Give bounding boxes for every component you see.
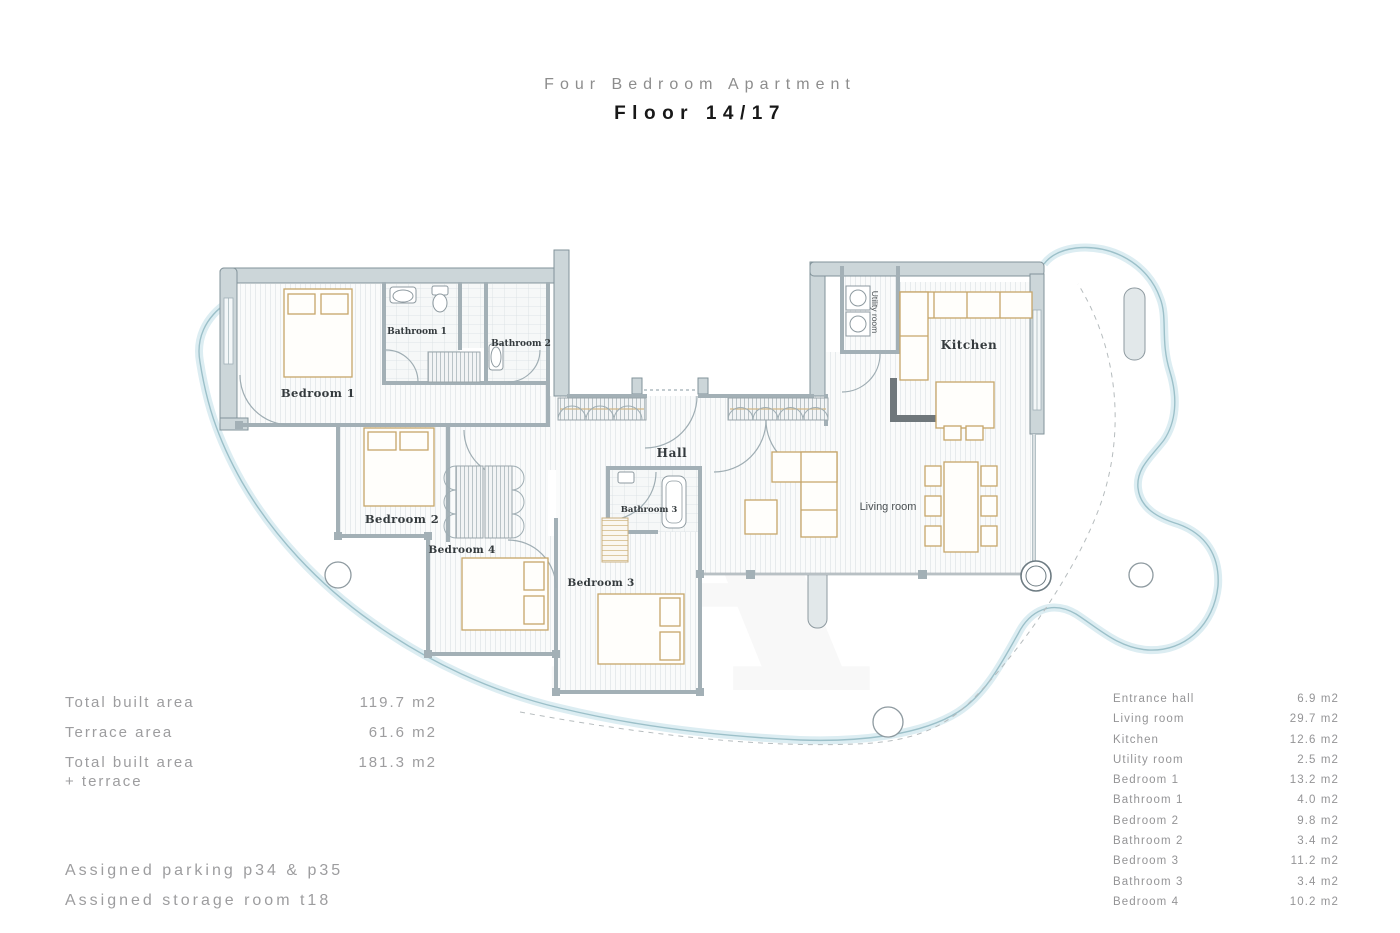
area-row-value: 13.2 m2 — [1290, 770, 1339, 790]
floor-number-title: Floor 14/17 — [0, 103, 1400, 125]
summary-label-line1: Total built area — [65, 754, 195, 771]
area-row-label: Bedroom 4 — [1113, 892, 1179, 912]
area-row-value: 4.0 m2 — [1297, 790, 1339, 810]
area-row-value: 3.4 m2 — [1297, 831, 1339, 851]
terrace-column — [1129, 563, 1153, 587]
area-row-value: 2.5 m2 — [1297, 750, 1339, 770]
summary-label: Terrace area — [65, 724, 173, 741]
area-row-label: Bathroom 1 — [1113, 790, 1183, 810]
assigned-storage-line: Assigned storage room t18 — [65, 886, 343, 916]
summary-row-total-plus-terrace: Total built area + terrace 181.3 m2 — [65, 754, 437, 790]
apartment-type-title: Four Bedroom Apartment — [0, 76, 1400, 94]
terrace-column — [325, 562, 351, 588]
summary-value: 119.7 m2 — [360, 694, 437, 711]
area-row: Bathroom 3 3.4 m2 — [1113, 872, 1339, 892]
summary-value: 181.3 m2 — [358, 754, 437, 790]
area-row-label: Utility room — [1113, 750, 1184, 770]
area-row-label: Bedroom 1 — [1113, 770, 1179, 790]
label-bedroom-1: Bedroom 1 — [281, 386, 355, 400]
summary-label: Total built area — [65, 694, 195, 711]
area-row-value: 10.2 m2 — [1290, 892, 1339, 912]
area-row: Utility room 2.5 m2 — [1113, 750, 1339, 770]
label-bathroom-1: Bathroom 1 — [387, 327, 447, 337]
room-areas-list: Entrance hall 6.9 m2 Living room 29.7 m2… — [1113, 689, 1339, 912]
area-row: Entrance hall 6.9 m2 — [1113, 689, 1339, 709]
area-row-value: 29.7 m2 — [1290, 709, 1339, 729]
area-summary: Total built area 119.7 m2 Terrace area 6… — [65, 694, 437, 803]
assigned-parking-line: Assigned parking p34 & p35 — [65, 856, 343, 886]
label-utility-room: Utility room — [870, 291, 880, 334]
label-kitchen: Kitchen — [941, 338, 997, 352]
area-row-value: 9.8 m2 — [1297, 811, 1339, 831]
title-block: Four Bedroom Apartment Floor 14/17 — [0, 76, 1400, 125]
assignments-block: Assigned parking p34 & p35 Assigned stor… — [65, 856, 343, 916]
area-row: Living room 29.7 m2 — [1113, 709, 1339, 729]
area-row: Bedroom 2 9.8 m2 — [1113, 811, 1339, 831]
label-bedroom-3: Bedroom 3 — [567, 577, 634, 589]
label-living-room: Living room — [860, 501, 917, 513]
terrace-planter — [1124, 288, 1145, 360]
label-bedroom-4: Bedroom 4 — [428, 544, 495, 556]
area-row: Bedroom 1 13.2 m2 — [1113, 770, 1339, 790]
area-row: Kitchen 12.6 m2 — [1113, 730, 1339, 750]
summary-row-total-built: Total built area 119.7 m2 — [65, 694, 437, 711]
area-row: Bedroom 3 11.2 m2 — [1113, 851, 1339, 871]
area-row-value: 11.2 m2 — [1291, 851, 1339, 871]
area-row-label: Bedroom 3 — [1113, 851, 1179, 871]
area-row-label: Entrance hall — [1113, 689, 1194, 709]
label-bathroom-3: Bathroom 3 — [621, 505, 678, 515]
area-row-value: 6.9 m2 — [1297, 689, 1339, 709]
area-row-label: Living room — [1113, 709, 1185, 729]
summary-label-line2: + terrace — [65, 773, 195, 790]
area-row: Bathroom 1 4.0 m2 — [1113, 790, 1339, 810]
area-row-label: Kitchen — [1113, 730, 1159, 750]
summary-value: 61.6 m2 — [369, 724, 437, 741]
area-row-value: 12.6 m2 — [1290, 730, 1339, 750]
area-row-label: Bedroom 2 — [1113, 811, 1179, 831]
area-row: Bathroom 2 3.4 m2 — [1113, 831, 1339, 851]
floorplan-sheet: A — [0, 0, 1400, 933]
terrace-column — [873, 707, 903, 737]
area-row: Bedroom 4 10.2 m2 — [1113, 892, 1339, 912]
summary-label: Total built area + terrace — [65, 754, 195, 790]
area-row-value: 3.4 m2 — [1297, 872, 1339, 892]
label-bedroom-2: Bedroom 2 — [365, 512, 439, 526]
area-row-label: Bathroom 2 — [1113, 831, 1183, 851]
area-row-label: Bathroom 3 — [1113, 872, 1183, 892]
label-hall: Hall — [657, 446, 688, 460]
label-bathroom-2: Bathroom 2 — [491, 339, 551, 349]
summary-row-terrace: Terrace area 61.6 m2 — [65, 724, 437, 741]
